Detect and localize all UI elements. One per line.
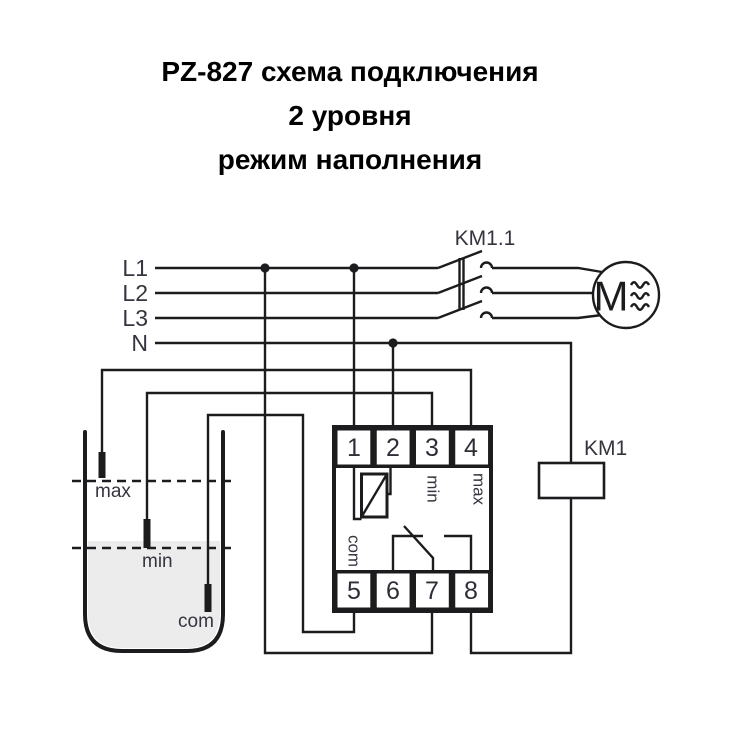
label-n: N — [131, 330, 148, 356]
km1-coil: KM1 — [539, 437, 627, 498]
tank-min-label: min — [142, 551, 173, 572]
relay-min-label: min — [424, 475, 443, 502]
contactor-contact-symbol — [438, 251, 492, 318]
wire-contact3-to-motor — [492, 315, 602, 318]
tank-max-label: max — [95, 481, 131, 502]
terminal-1-number: 1 — [347, 434, 361, 462]
junction-dot — [388, 338, 397, 347]
terminal-4-number: 4 — [464, 434, 478, 462]
relay-max-label: max — [470, 473, 489, 506]
terminal-5-number: 5 — [347, 577, 361, 605]
label-l3: L3 — [122, 305, 148, 331]
junction-dot — [260, 263, 269, 272]
wire-contact1-to-motor — [492, 268, 602, 272]
label-l1: L1 — [122, 255, 148, 281]
contactor-label: KM1.1 — [455, 227, 516, 250]
terminal-8-number: 8 — [464, 577, 478, 605]
motor-letter: M — [594, 273, 629, 320]
motor: M — [593, 262, 659, 328]
terminal-2-number: 2 — [386, 434, 400, 462]
km1-coil-label: KM1 — [584, 437, 627, 460]
junction-dot — [349, 263, 358, 272]
wiring-diagram-canvas: PZ-827 схема подключения 2 уровня режим … — [0, 0, 750, 750]
wiring-diagram: max min com L1 L2 L3 N KM1.1 — [0, 0, 750, 750]
terminal-3-number: 3 — [425, 434, 439, 462]
km1-coil-rect — [539, 463, 604, 498]
label-l2: L2 — [122, 280, 148, 306]
relay-com-label: com — [345, 535, 364, 567]
contactor-km11: KM1.1 — [438, 227, 602, 318]
terminal-7-number: 7 — [425, 577, 439, 605]
tank-com-label: com — [178, 611, 214, 632]
relay-box: 1 2 3 4 5 6 7 8 min max c — [334, 427, 491, 611]
terminal-6-number: 6 — [386, 577, 400, 605]
